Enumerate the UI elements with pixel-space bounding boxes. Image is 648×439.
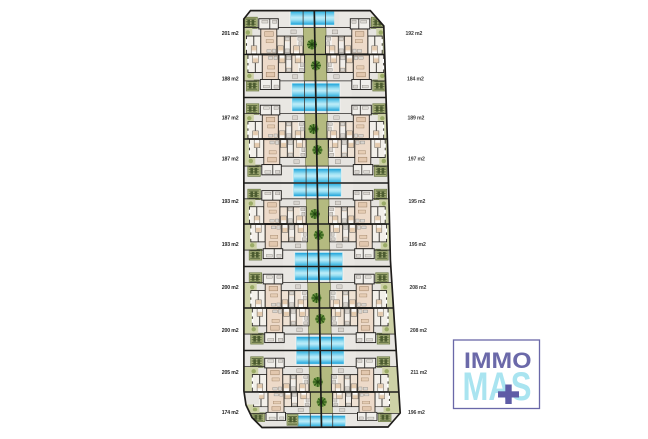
svg-text:200 m2: 200 m2 [222, 285, 239, 291]
svg-text:187 m2: 187 m2 [222, 157, 239, 163]
svg-text:211 m2: 211 m2 [411, 370, 428, 376]
svg-text:MAS: MAS [463, 365, 532, 409]
svg-text:193 m2: 193 m2 [222, 199, 239, 205]
svg-text:189 m2: 189 m2 [408, 116, 425, 122]
svg-text:195 m2: 195 m2 [409, 242, 426, 248]
svg-text:184 m2: 184 m2 [407, 77, 424, 83]
svg-text:196 m2: 196 m2 [408, 410, 425, 416]
svg-text:205 m2: 205 m2 [222, 370, 239, 376]
svg-text:174 m2: 174 m2 [222, 410, 239, 416]
svg-text:187 m2: 187 m2 [222, 116, 239, 122]
svg-text:195 m2: 195 m2 [409, 199, 426, 205]
svg-text:192 m2: 192 m2 [406, 31, 423, 37]
svg-text:208 m2: 208 m2 [410, 328, 427, 334]
svg-text:201 m2: 201 m2 [222, 31, 239, 37]
svg-text:197 m2: 197 m2 [408, 157, 425, 163]
svg-text:188 m2: 188 m2 [222, 77, 239, 83]
svg-text:200 m2: 200 m2 [222, 328, 239, 334]
svg-text:208 m2: 208 m2 [410, 285, 427, 291]
svg-text:193 m2: 193 m2 [222, 242, 239, 248]
